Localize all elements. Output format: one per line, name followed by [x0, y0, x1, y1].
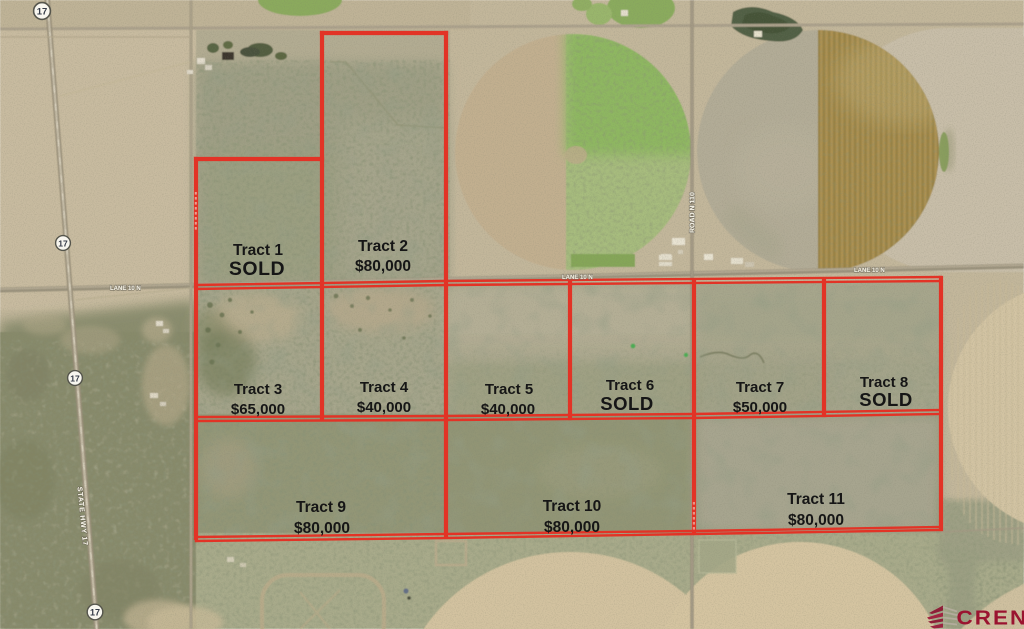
svg-text:Tract 2: Tract 2 — [358, 238, 408, 255]
svg-text:$80,000: $80,000 — [788, 512, 844, 529]
svg-text:Tract 7: Tract 7 — [736, 379, 784, 396]
svg-text:ROAD N 110: ROAD N 110 — [690, 192, 697, 233]
svg-text:$65,000: $65,000 — [231, 401, 285, 418]
svg-text:Tract 6: Tract 6 — [606, 377, 654, 394]
svg-text:LANE 10 N: LANE 10 N — [110, 286, 141, 292]
svg-text:CREN: CREN — [957, 606, 1024, 629]
svg-text:17: 17 — [37, 7, 48, 18]
svg-text:Tract 4: Tract 4 — [360, 379, 409, 396]
svg-text:Tract 11: Tract 11 — [787, 491, 845, 508]
svg-text:17: 17 — [58, 238, 68, 248]
svg-text:LANE 10 N: LANE 10 N — [854, 268, 885, 274]
svg-text:$80,000: $80,000 — [544, 519, 600, 536]
svg-text:17: 17 — [90, 608, 100, 618]
svg-text:Tract 9: Tract 9 — [296, 499, 346, 516]
svg-text:Tract 5: Tract 5 — [485, 381, 533, 398]
svg-text:$80,000: $80,000 — [294, 520, 350, 537]
svg-text:LANE 10 N: LANE 10 N — [562, 275, 593, 281]
svg-text:Tract 10: Tract 10 — [543, 498, 602, 515]
svg-text:$40,000: $40,000 — [357, 399, 411, 416]
svg-text:SOLD: SOLD — [859, 389, 912, 410]
svg-text:SOLD: SOLD — [229, 258, 285, 280]
svg-text:Tract 3: Tract 3 — [234, 381, 282, 398]
svg-text:$50,000: $50,000 — [733, 399, 787, 416]
svg-text:SOLD: SOLD — [600, 393, 653, 414]
svg-text:17: 17 — [70, 373, 80, 383]
svg-text:$80,000: $80,000 — [355, 258, 411, 275]
svg-text:Tract 1: Tract 1 — [233, 242, 283, 259]
svg-text:$40,000: $40,000 — [481, 401, 535, 418]
